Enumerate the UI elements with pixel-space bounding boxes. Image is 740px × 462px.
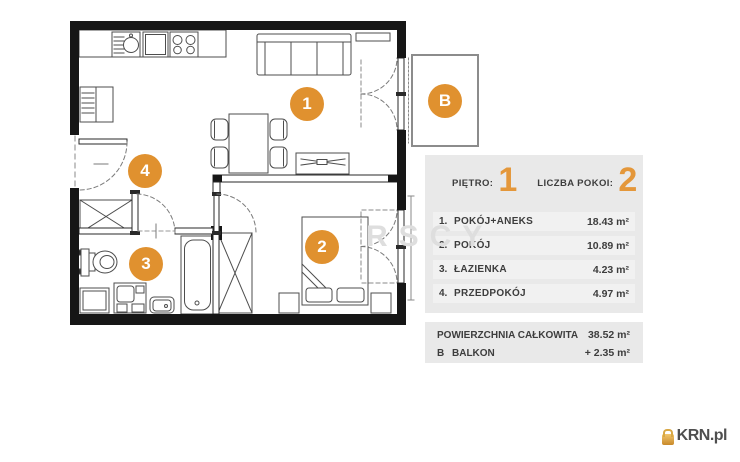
bathroom-sink [150, 297, 174, 313]
rooms-count-value: 2 [618, 165, 637, 195]
logo-text: KRN.pl [677, 427, 727, 445]
nightstand-right [371, 293, 391, 313]
padlock-icon [662, 434, 674, 445]
panel-header: PIĘTRO: 1 LICZBA POKOI: 2 [425, 155, 643, 195]
room-row-area: 10.89 m² [587, 240, 629, 252]
dining-table [211, 114, 287, 173]
bedroom-closet [218, 233, 252, 313]
nightstand-left [279, 293, 299, 313]
balcony-row-label: BALKON [452, 348, 495, 359]
balcony-area-value: + 2.35 m² [585, 347, 630, 359]
balcony-marker: B [428, 84, 462, 118]
room-2-marker: 2 [305, 230, 339, 264]
room-row-4: 4. PRZEDPOKÓJ 4.97 m² [433, 284, 635, 303]
room-row-number: 3. [439, 264, 454, 275]
watermark: RSCY [366, 220, 493, 254]
total-area-label: POWIERZCHNIA CAŁKOWITA [437, 330, 578, 341]
room-4-marker: 4 [128, 154, 162, 188]
balcony-area-row: B BALKON + 2.35 m² [425, 341, 643, 359]
room-row-name: PRZEDPOKÓJ [454, 288, 526, 299]
tv-cabinet [296, 153, 349, 174]
floorplan-page: 1 2 3 4 B RSCY PIĘTRO: 1 LICZBA POKOI: 2… [0, 0, 740, 462]
room-3-marker: 3 [129, 247, 163, 281]
room-row-3: 3. ŁAZIENKA 4.23 m² [433, 260, 635, 279]
totals-panel: POWIERZCHNIA CAŁKOWITA 38.52 m² B BALKON… [425, 322, 643, 363]
room-1-marker: 1 [290, 87, 324, 121]
room-row-area: 18.43 m² [587, 216, 629, 228]
room-row-area: 4.23 m² [593, 264, 629, 276]
bathtub [181, 236, 214, 314]
room-row-name: ŁAZIENKA [454, 264, 507, 275]
toilet [77, 249, 117, 276]
fridge [80, 87, 113, 122]
stove-icon [170, 32, 198, 57]
radiator [356, 33, 390, 41]
floor-label: PIĘTRO: [452, 178, 493, 189]
floor-value: 1 [498, 165, 517, 195]
rooms-count-label: LICZBA POKOI: [537, 178, 613, 189]
balcony-row-letter: B [437, 348, 452, 359]
kitchen-counter [79, 30, 226, 57]
total-area-value: 38.52 m² [588, 329, 630, 341]
washing-machine [114, 283, 146, 313]
total-area-row: POWIERZCHNIA CAŁKOWITA 38.52 m² [425, 322, 643, 341]
room-row-area: 4.97 m² [593, 288, 629, 300]
room-row-number: 4. [439, 288, 454, 299]
sofa [257, 34, 351, 75]
krn-logo: KRN.pl [662, 427, 727, 445]
bathroom-radiator [80, 288, 109, 313]
